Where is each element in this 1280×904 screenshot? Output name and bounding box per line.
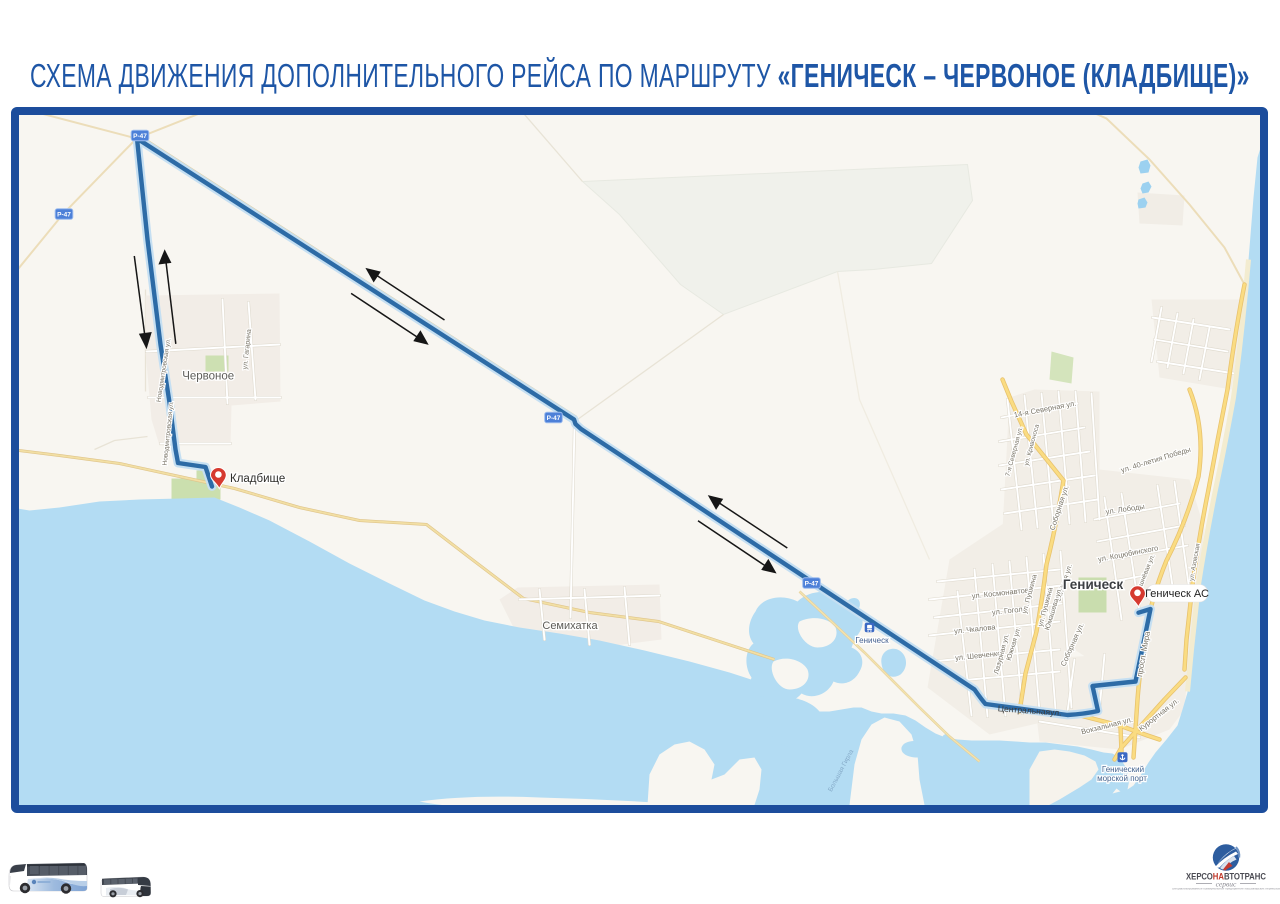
svg-text:Р-47: Р-47 — [133, 133, 147, 140]
svg-text:Р-47: Р-47 — [805, 581, 819, 588]
svg-text:специализированное коммунально: специализированное коммунальное предприя… — [1172, 887, 1280, 891]
svg-text:Р-47: Р-47 — [547, 415, 561, 422]
svg-text:Кладбище: Кладбище — [230, 473, 285, 485]
svg-text:Геническ АС: Геническ АС — [1145, 588, 1209, 600]
svg-text:Семихатка: Семихатка — [542, 620, 598, 632]
svg-text:морской порт: морской порт — [1097, 774, 1147, 783]
svg-text:Геническ: Геническ — [855, 636, 889, 645]
svg-text:Генический: Генический — [1102, 765, 1144, 774]
svg-text:Р-47: Р-47 — [57, 212, 71, 219]
svg-text:Геническ: Геническ — [1063, 577, 1124, 592]
svg-text:Червоное: Червоное — [182, 371, 234, 383]
